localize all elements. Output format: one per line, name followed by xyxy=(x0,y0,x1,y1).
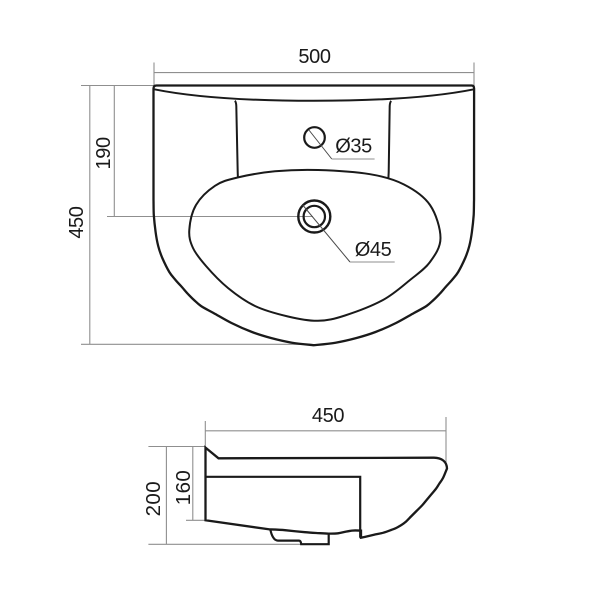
svg-text:450: 450 xyxy=(66,206,88,238)
svg-text:160: 160 xyxy=(172,470,195,505)
svg-text:500: 500 xyxy=(298,46,330,68)
svg-text:190: 190 xyxy=(93,137,115,169)
svg-text:Ø45: Ø45 xyxy=(355,239,392,261)
svg-text:200: 200 xyxy=(142,481,165,516)
svg-text:450: 450 xyxy=(312,405,344,427)
svg-text:Ø35: Ø35 xyxy=(335,135,372,157)
